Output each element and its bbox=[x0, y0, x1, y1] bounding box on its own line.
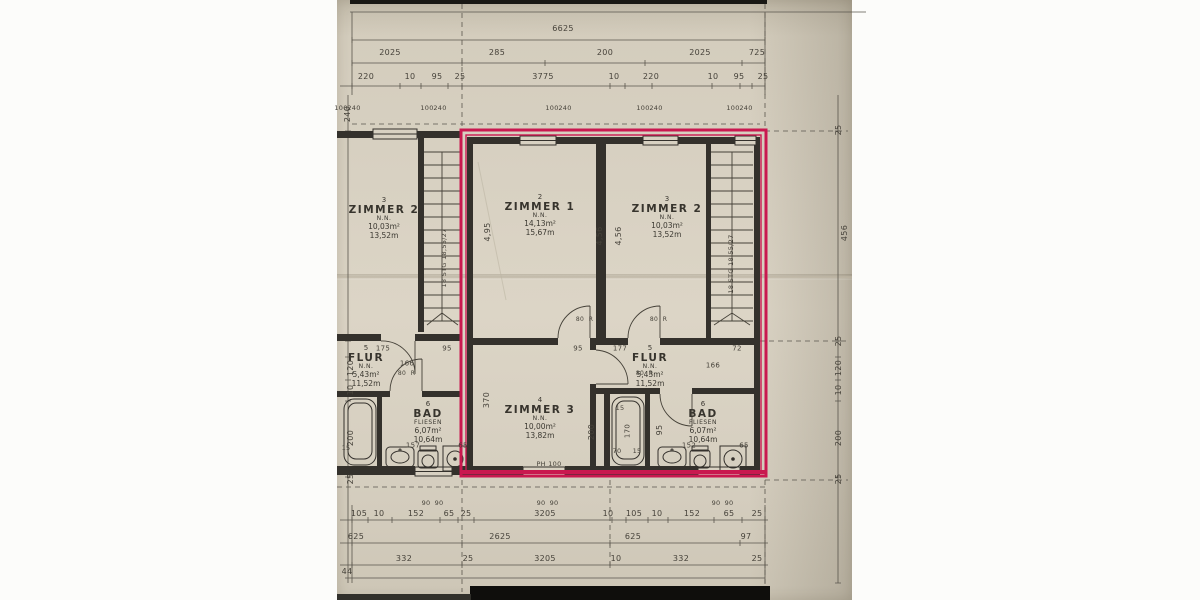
dimension-label: 15 bbox=[616, 405, 625, 412]
floorplan-linework bbox=[0, 0, 1200, 600]
dimension-label: 456 bbox=[841, 225, 849, 241]
dimension-label: 95 bbox=[432, 73, 443, 81]
dimension-label: 200 bbox=[835, 430, 843, 446]
dimension-label: 625 bbox=[348, 533, 364, 541]
room-label-bad-left: 6 BAD FLIESEN 6,07m² 10,64m bbox=[413, 400, 442, 444]
dimension-label: 3205 bbox=[534, 555, 556, 563]
dimension-label: 10 bbox=[374, 510, 385, 518]
dimension-label: R bbox=[649, 371, 653, 377]
dimension-label: 725 bbox=[749, 49, 765, 57]
dimension-label: 10 bbox=[835, 385, 843, 396]
dimension-label: 80 bbox=[636, 371, 644, 377]
dimension-label: 10 bbox=[347, 385, 355, 396]
dimension-label: 95 bbox=[573, 346, 583, 353]
dimension-label: 15 bbox=[342, 445, 351, 452]
dimension-label: 105 bbox=[626, 510, 642, 518]
dimension-label: 240 bbox=[344, 106, 352, 122]
dimension-label: 332 bbox=[396, 555, 412, 563]
dimension-label: 25 bbox=[752, 510, 763, 518]
dimension-label: 25 bbox=[461, 510, 472, 518]
sink-right bbox=[658, 447, 686, 467]
dimension-label: 25 bbox=[347, 474, 355, 485]
dimension-label: 25 bbox=[463, 555, 474, 563]
dimension-label: 80 bbox=[650, 317, 658, 323]
room-label-zimmer3: 4 ZIMMER 3 N.N. 10,00m² 13,82m bbox=[505, 396, 576, 440]
dimension-label: 25 bbox=[758, 73, 769, 81]
dimension-label: 4,95 bbox=[484, 222, 492, 241]
dimension-label: 65 bbox=[739, 443, 749, 450]
dimension-label: 90 bbox=[712, 500, 721, 507]
dimension-label: 90 bbox=[435, 500, 444, 507]
dimension-label: 10 bbox=[708, 73, 719, 81]
dimension-label: 10 bbox=[603, 510, 614, 518]
dimension-label: R bbox=[411, 371, 415, 377]
room-label-zimmer2-left: 3 ZIMMER 2 N.N. 10,03m² 13,52m bbox=[349, 196, 420, 240]
dimension-label: 10 bbox=[652, 510, 663, 518]
dimension-label: PH 100 bbox=[536, 461, 561, 468]
dimension-lines-dashed bbox=[337, 4, 848, 592]
dimension-label: 10 bbox=[609, 73, 620, 81]
room-label-zimmer1: 2 ZIMMER 1 N.N. 14,13m² 15,67m bbox=[505, 193, 576, 237]
dimension-label: 90 bbox=[725, 500, 734, 507]
dimension-label: 95 bbox=[656, 425, 664, 436]
dimension-label: 152 bbox=[684, 510, 700, 518]
dimension-label: 25 bbox=[835, 474, 843, 485]
dimension-label: 80 bbox=[576, 317, 584, 323]
dimension-label: 95 bbox=[734, 73, 745, 81]
dimension-label: 10 bbox=[611, 555, 622, 563]
dimension-label: 80 bbox=[398, 371, 406, 377]
dimension-label: 157 bbox=[406, 443, 420, 450]
dimension-label: 70 bbox=[613, 448, 622, 455]
dimension-label: 100 bbox=[636, 105, 649, 112]
dimension-label: 4,56 bbox=[596, 226, 604, 245]
dimension-label: 240 bbox=[649, 105, 662, 112]
dimension-label: 25 bbox=[835, 336, 843, 347]
dimension-label: 332 bbox=[673, 555, 689, 563]
dimension-label: 65 bbox=[444, 510, 455, 518]
dimension-label: 95 bbox=[442, 346, 452, 353]
dimension-label: 2025 bbox=[379, 49, 401, 57]
dimension-label: 97 bbox=[741, 533, 752, 541]
dimension-label: 220 bbox=[358, 73, 374, 81]
dimension-label: 2625 bbox=[489, 533, 511, 541]
dimension-label: 3775 bbox=[532, 73, 554, 81]
dimension-label: 100 bbox=[545, 105, 558, 112]
dimension-label: 90 bbox=[550, 500, 559, 507]
dimension-label: 100 bbox=[726, 105, 739, 112]
dimension-label: 105 bbox=[351, 510, 367, 518]
dimension-label: 175 bbox=[376, 346, 390, 353]
dimension-label: 240 bbox=[739, 105, 752, 112]
dimension-label: 240 bbox=[433, 105, 446, 112]
dimension-label: 44 bbox=[342, 568, 353, 576]
dimension-label: 15 bbox=[633, 448, 642, 455]
dimension-label: 100 bbox=[420, 105, 433, 112]
dimension-label: 6625 bbox=[552, 25, 574, 33]
dimension-label: 240 bbox=[558, 105, 571, 112]
dimension-label: 625 bbox=[625, 533, 641, 541]
room-label-zimmer2-right: 3 ZIMMER 2 N.N. 10,03m² 13,52m bbox=[632, 195, 703, 239]
dimension-label: 152 bbox=[408, 510, 424, 518]
dimension-label: 18 STG 18,55/27 bbox=[441, 228, 448, 287]
dimension-label: 170 bbox=[625, 424, 632, 438]
dimension-label: 370 bbox=[483, 392, 491, 408]
room-label-flur-right: 5 FLUR N.N. 5,43m² 11,52m bbox=[632, 344, 668, 388]
dimension-label: 25 bbox=[455, 73, 466, 81]
dimension-label: 65 bbox=[724, 510, 735, 518]
dimension-label: 200 bbox=[597, 49, 613, 57]
dimension-label: 18 STG 18,55/27 bbox=[728, 234, 735, 293]
dimension-label: 120 bbox=[835, 360, 843, 376]
dimension-label: 25 bbox=[752, 555, 763, 563]
dimension-label: 3205 bbox=[534, 510, 556, 518]
dimension-label: 10 bbox=[405, 73, 416, 81]
dimension-label: 200 bbox=[588, 424, 596, 440]
dimension-label: 120 bbox=[347, 360, 355, 376]
dimension-label: 72 bbox=[732, 346, 742, 353]
sink-left bbox=[386, 447, 414, 467]
dimension-label: 2025 bbox=[689, 49, 711, 57]
dimension-label: 90 bbox=[537, 500, 546, 507]
dimension-label: 220 bbox=[643, 73, 659, 81]
dimension-label: 166 bbox=[706, 363, 720, 370]
dimension-label: 65 bbox=[458, 443, 468, 450]
dimension-label: 152 bbox=[682, 443, 696, 450]
dimension-label: 285 bbox=[489, 49, 505, 57]
dimension-label: R bbox=[589, 317, 593, 323]
dimension-label: R bbox=[663, 317, 667, 323]
dimension-label: 4,56 bbox=[615, 226, 623, 245]
floor-plan-photo: 3 ZIMMER 2 N.N. 10,03m² 13,52m 2 ZIMMER … bbox=[0, 0, 1200, 600]
dimension-label: 166 bbox=[400, 361, 414, 368]
dimension-label: 90 bbox=[422, 500, 431, 507]
dimension-label: 25 bbox=[835, 125, 843, 136]
room-label-bad-right: 6 BAD FLIESEN 6,07m² 10,64m bbox=[688, 400, 717, 444]
dimension-label: 177 bbox=[613, 346, 627, 353]
